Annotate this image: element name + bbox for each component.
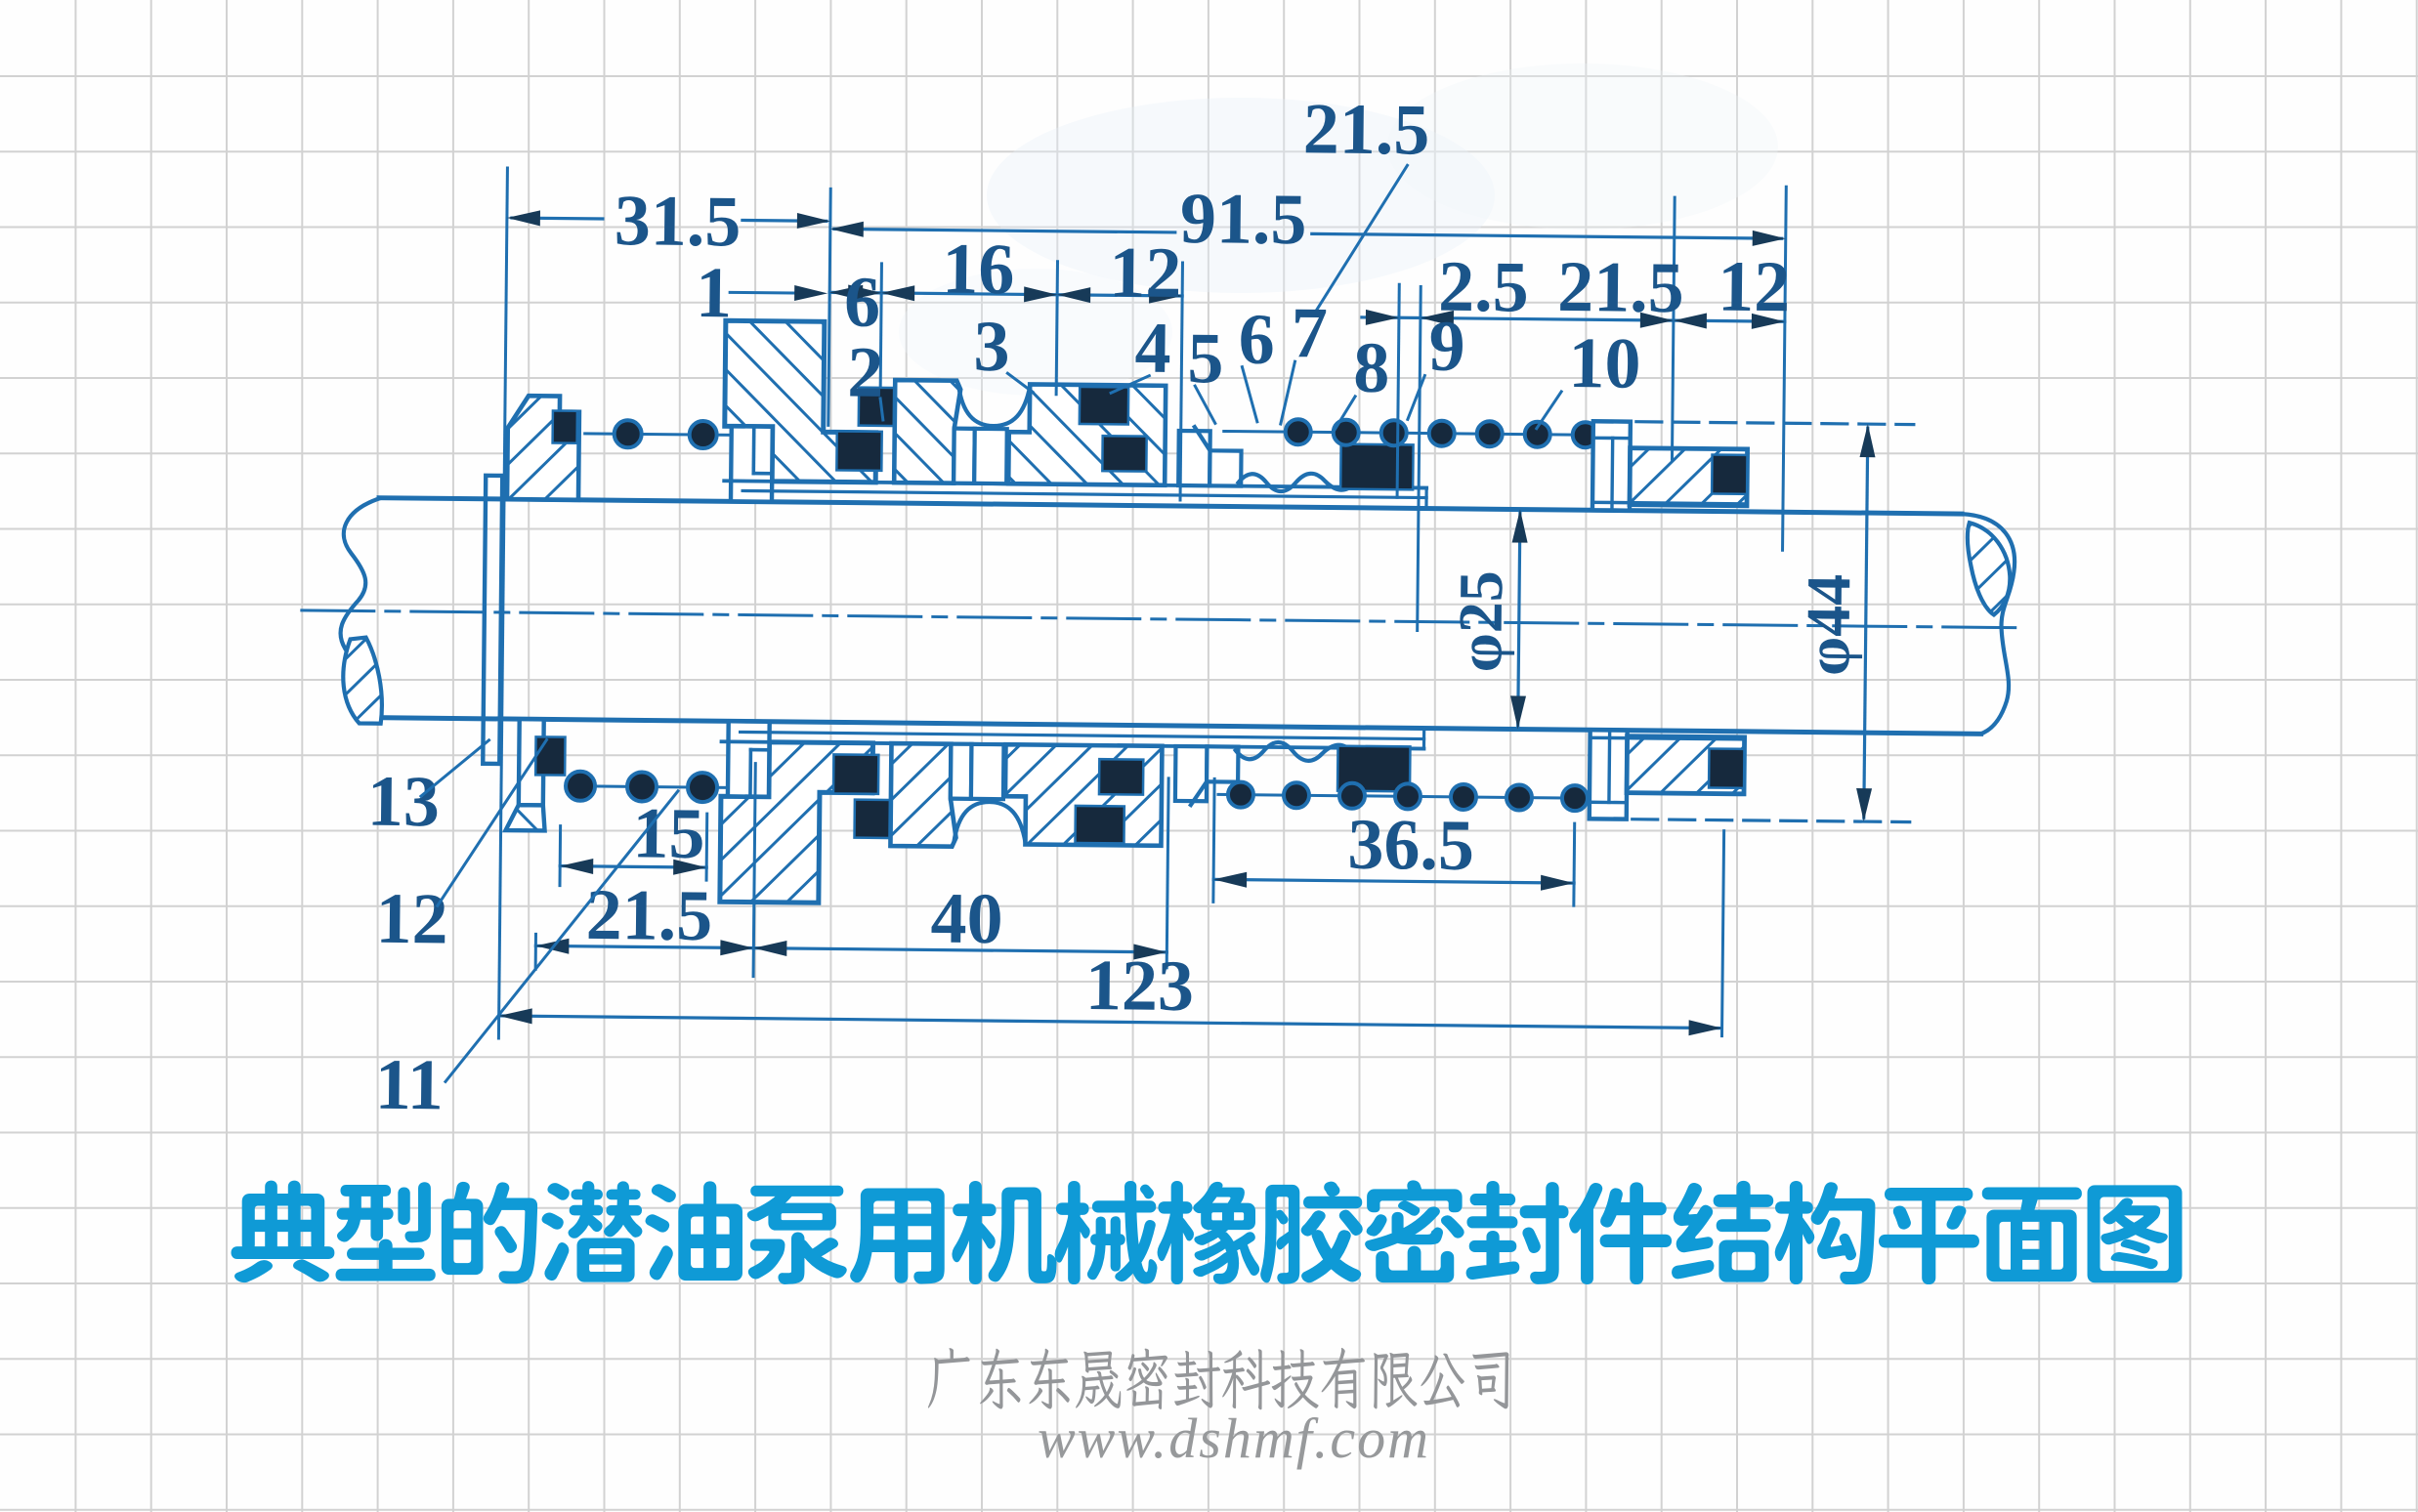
svg-text:7: 7 <box>1291 293 1328 373</box>
svg-text:21.5: 21.5 <box>1557 247 1684 328</box>
svg-text:91.5: 91.5 <box>1180 179 1307 260</box>
svg-text:16: 16 <box>942 230 1015 311</box>
svg-text:11: 11 <box>375 1045 445 1126</box>
svg-text:φ44: φ44 <box>1793 573 1863 676</box>
svg-text:12: 12 <box>375 879 448 960</box>
svg-text:5: 5 <box>1187 318 1224 399</box>
svg-text:8: 8 <box>1353 328 1390 408</box>
svg-text:φ25: φ25 <box>1445 570 1515 673</box>
svg-text:9: 9 <box>1428 307 1465 387</box>
svg-text:123: 123 <box>1085 945 1195 1027</box>
svg-text:4: 4 <box>1134 309 1171 389</box>
svg-text:2: 2 <box>847 333 884 413</box>
svg-text:21.5: 21.5 <box>1302 89 1429 170</box>
svg-text:6: 6 <box>844 263 881 343</box>
svg-text:21.5: 21.5 <box>585 875 712 956</box>
svg-text:40: 40 <box>930 878 1003 959</box>
svg-text:1: 1 <box>696 253 733 333</box>
svg-text:10: 10 <box>1568 323 1641 404</box>
svg-text:36.5: 36.5 <box>1347 805 1474 886</box>
svg-text:www.dshmf.com: www.dshmf.com <box>1038 1407 1430 1470</box>
svg-text:12: 12 <box>1109 232 1182 314</box>
svg-text:12: 12 <box>1718 247 1791 328</box>
svg-text:3: 3 <box>973 307 1010 387</box>
svg-text:13: 13 <box>366 762 440 843</box>
svg-text:31.5: 31.5 <box>614 181 741 262</box>
